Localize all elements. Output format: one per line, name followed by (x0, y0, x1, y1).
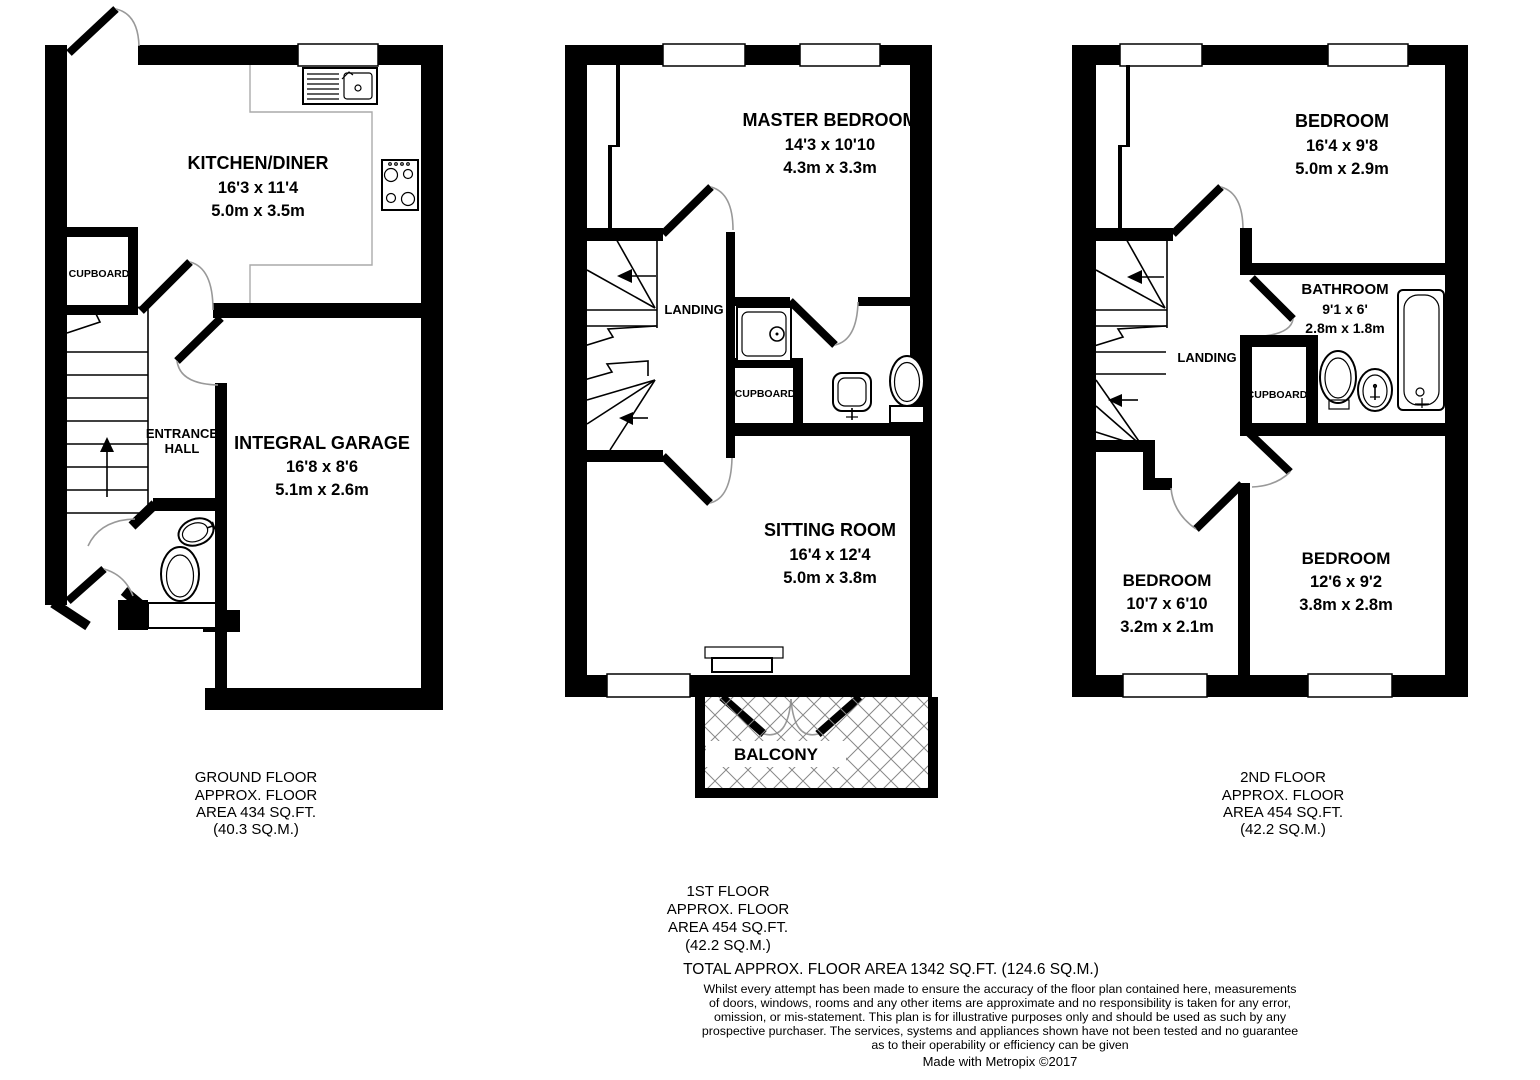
wall (565, 45, 587, 697)
wall (1240, 423, 1445, 436)
room-size-ft: 16'4 x 9'8 (1306, 137, 1378, 155)
room-label-landing: LANDING (1177, 350, 1236, 365)
wall (138, 45, 443, 65)
disclaimer-line: as to their operability or efficiency ca… (871, 1038, 1128, 1052)
toilet-icon (148, 547, 216, 628)
window (1308, 674, 1392, 697)
bathroom-door-swing (1252, 278, 1293, 337)
room-label-bathroom: BATHROOM (1301, 281, 1388, 298)
caption-line: AREA 454 SQ.FT. (668, 919, 788, 936)
arrow-left-icon (1127, 270, 1142, 284)
second-floor-plan: BEDROOM 16'4 x 9'8 5.0m x 2.9m BATHROOM … (1072, 44, 1468, 697)
room-label-balcony: BALCONY (734, 745, 819, 764)
wall (587, 450, 663, 462)
caption-line: GROUND FLOOR (195, 769, 318, 786)
hob-icon (382, 160, 418, 210)
room-label-entrance-hall: ENTRANCE (146, 426, 219, 441)
caption-line: (42.2 SQ.M.) (685, 937, 771, 954)
caption-line: AREA 454 SQ.FT. (1223, 804, 1343, 821)
landing-walls (1096, 440, 1172, 490)
room-label-cupboard: CUPBOARD (1247, 389, 1308, 401)
room-size-ft: 16'8 x 8'6 (286, 458, 358, 476)
first-floor-caption: 1ST FLOOR APPROX. FLOOR AREA 454 SQ.FT. … (667, 883, 790, 954)
bedroom-door-swing (1173, 187, 1243, 234)
shower-icon (737, 307, 791, 361)
floorplan-drawing: KITCHEN/DINER 16'3 x 11'4 5.0m x 3.5m CU… (0, 0, 1540, 1080)
disclaimer-line: of doors, windows, rooms and any other i… (709, 996, 1291, 1010)
room-label-bedroom-top: BEDROOM (1295, 111, 1389, 131)
room-label-bedroom-left: BEDROOM (1123, 571, 1212, 590)
staircase (1094, 237, 1167, 447)
second-cupboard-walls (1240, 335, 1318, 435)
staircase (584, 237, 657, 450)
wall (1252, 263, 1445, 275)
basin-icon (175, 513, 219, 550)
room-size-m: 5.0m x 3.5m (211, 202, 305, 220)
caption-line: APPROX. FLOOR (1222, 787, 1345, 804)
basin-icon (833, 373, 871, 420)
room-size-m: 4.3m x 3.3m (783, 159, 877, 177)
room-size-ft: 16'3 x 11'4 (218, 179, 299, 197)
ground-floor-caption: GROUND FLOOR APPROX. FLOOR AREA 434 SQ.F… (195, 769, 318, 838)
arrow-left-icon (1108, 394, 1122, 407)
wall (45, 45, 67, 605)
room-size-m: 5.0m x 2.9m (1295, 160, 1389, 178)
wall (213, 303, 421, 318)
wall (205, 688, 443, 710)
room-label-landing: LANDING (664, 302, 723, 317)
wall (1096, 228, 1173, 241)
total-area-text: TOTAL APPROX. FLOOR AREA 1342 SQ.FT. (12… (683, 961, 1099, 978)
toilet-icon (890, 356, 924, 423)
kitchen-door-swing (141, 262, 213, 311)
room-label-bedroom-right: BEDROOM (1302, 549, 1391, 568)
window (800, 44, 880, 66)
wall (1445, 45, 1468, 697)
room-size-m: 3.8m x 2.8m (1299, 596, 1393, 614)
wall (421, 45, 443, 710)
room-label-master-bedroom: MASTER BEDROOM (743, 110, 918, 130)
window (663, 44, 745, 66)
summary-block: TOTAL APPROX. FLOOR AREA 1342 SQ.FT. (12… (683, 961, 1298, 1069)
caption-line: (40.3 SQ.M.) (213, 821, 299, 838)
wall (1240, 228, 1252, 275)
caption-line: APPROX. FLOOR (667, 901, 790, 918)
wall (858, 297, 910, 306)
basin-icon (1358, 369, 1392, 411)
room-size-ft: 12'6 x 9'2 (1310, 573, 1382, 591)
wc-door-swing (68, 519, 142, 606)
room-label-garage: INTEGRAL GARAGE (234, 433, 410, 453)
window (298, 44, 378, 66)
sink-icon (303, 68, 377, 104)
disclaimer-line: omission, or mis-statement. This plan is… (714, 1010, 1287, 1024)
front-door-swing (69, 9, 139, 53)
room-label-cupboard: CUPBOARD (69, 268, 130, 280)
room-size-m: 5.0m x 3.8m (783, 569, 877, 587)
arrow-left-icon (617, 269, 632, 283)
room-size-ft: 14'3 x 10'10 (785, 136, 875, 154)
wall (1072, 45, 1096, 697)
balcony: BALCONY (695, 697, 938, 798)
room-label-kitchen: KITCHEN/DINER (187, 153, 328, 173)
wall (587, 228, 663, 241)
wall (1238, 483, 1250, 675)
floorplan-page: KITCHEN/DINER 16'3 x 11'4 5.0m x 3.5m CU… (0, 0, 1540, 1080)
window (1120, 44, 1202, 66)
first-floor-plan: BALCONY MASTER BEDROOM 14'3 x 10'10 4.3m… (565, 44, 938, 798)
shower-room-door-swing (790, 301, 858, 345)
window (1123, 674, 1207, 697)
ground-floor-plan: KITCHEN/DINER 16'3 x 11'4 5.0m x 3.5m CU… (45, 9, 443, 710)
room-label-cupboard: CUPBOARD (735, 388, 796, 400)
room-size-m: 3.2m x 2.1m (1120, 618, 1214, 636)
room-label-sitting-room: SITTING ROOM (764, 520, 896, 540)
caption-line: AREA 434 SQ.FT. (196, 804, 316, 821)
caption-line: 2ND FLOOR (1240, 769, 1326, 786)
room-size-ft: 16'4 x 12'4 (789, 546, 871, 564)
stair-void-lines (1118, 65, 1130, 228)
staircase (67, 306, 148, 517)
caption-line: 1ST FLOOR (686, 883, 769, 900)
bedroom-left-door-swing (1171, 484, 1242, 529)
wall (734, 297, 790, 306)
caption-line: APPROX. FLOOR (195, 787, 318, 804)
bedroom-door-swing (663, 187, 733, 234)
metropix-credit: Made with Metropix ©2017 (923, 1054, 1078, 1069)
caption-line: (42.2 SQ.M.) (1240, 821, 1326, 838)
bathtub-icon (1398, 290, 1444, 410)
room-label-entrance-hall: HALL (165, 441, 200, 456)
window (607, 674, 690, 697)
wall (726, 423, 910, 436)
room-size-ft: 9'1 x 6' (1322, 301, 1368, 317)
second-floor-caption: 2ND FLOOR APPROX. FLOOR AREA 454 SQ.FT. … (1222, 769, 1345, 838)
wall (53, 603, 88, 626)
window (1328, 44, 1408, 66)
sitting-room-door-swing (663, 456, 732, 503)
garage-door-swing (177, 318, 221, 385)
room-size-m: 2.8m x 1.8m (1305, 320, 1384, 336)
disclaimer-line: Whilst every attempt has been made to en… (703, 982, 1296, 996)
tv-unit-icon (705, 647, 783, 672)
room-size-ft: 10'7 x 6'10 (1126, 595, 1207, 613)
disclaimer-line: prospective purchaser. The services, sys… (702, 1024, 1298, 1038)
toilet-icon (1320, 351, 1356, 409)
arrow-left-icon (619, 412, 633, 425)
stair-void-lines (608, 65, 620, 228)
bedroom-right-door-swing (1246, 430, 1290, 487)
room-size-m: 5.1m x 2.6m (275, 481, 369, 499)
